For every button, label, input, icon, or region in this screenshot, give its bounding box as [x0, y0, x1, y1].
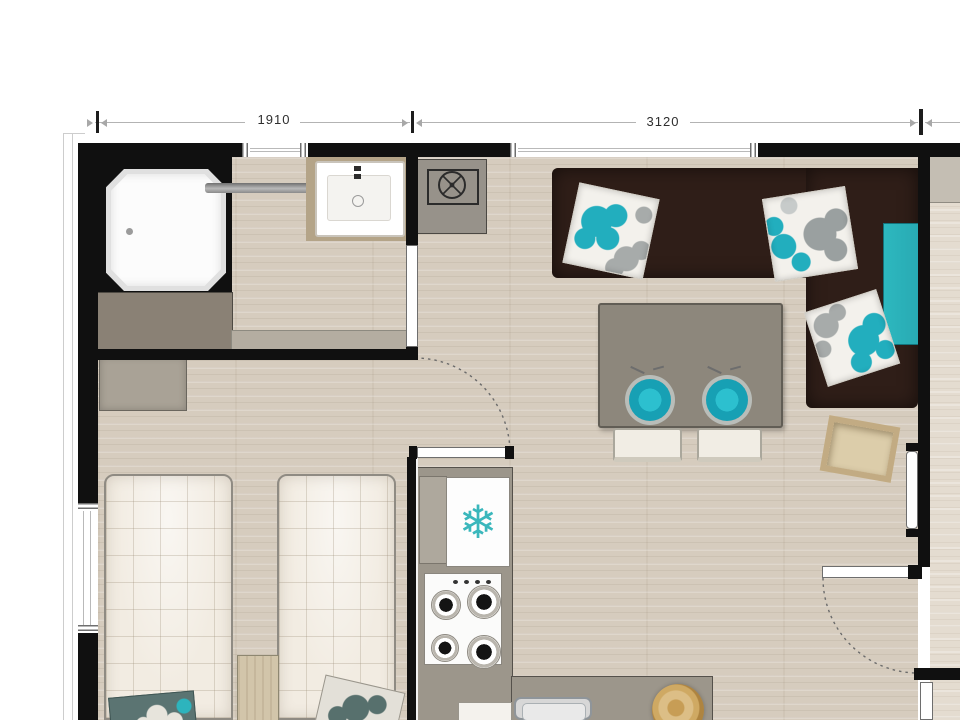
- dimension-line-segment: [300, 122, 410, 123]
- dimension-label-1910: 1910: [246, 112, 302, 127]
- right-wall-window: [906, 451, 918, 529]
- sofa-pillow: [562, 182, 659, 279]
- plan-outline-vertical-2: [72, 133, 73, 720]
- bathroom-window: [242, 143, 308, 157]
- single-bed: [104, 474, 233, 720]
- burner-icon: [431, 590, 461, 620]
- burner-icon: [467, 635, 501, 669]
- bathroom-counter: [98, 293, 232, 350]
- wall-bedroom-horizontal: [98, 349, 418, 360]
- dimension-line-segment: [95, 122, 245, 123]
- washbasin: [315, 161, 405, 237]
- right-window-cap: [906, 443, 918, 451]
- faucet-icon: [354, 174, 361, 179]
- burner-icon: [431, 634, 459, 662]
- adjacent-room-floor: [930, 157, 960, 720]
- shower-drain-icon: [126, 228, 133, 235]
- dimension-arrow-icon: [402, 119, 408, 127]
- right-door-hinge: [908, 565, 922, 579]
- shower-screen-bar: [205, 183, 313, 193]
- wall-bathroom-divider: [406, 157, 418, 245]
- hall-door-leaf: [417, 447, 507, 458]
- burner-icon: [467, 585, 501, 619]
- dimension-tick: [411, 111, 414, 133]
- living-room-window: [510, 143, 758, 157]
- wall-bottom-right-stub: [914, 668, 960, 680]
- place-setting: [625, 375, 675, 425]
- basin-drain-icon: [352, 195, 364, 207]
- faucet-icon: [354, 166, 361, 171]
- hall-door-hinge: [409, 446, 417, 459]
- water-heater: [415, 159, 487, 234]
- gas-hob: [424, 573, 502, 665]
- dining-chair: [613, 428, 682, 462]
- fridge-side-panel: [420, 477, 446, 563]
- plan-outline-vertical-1: [63, 133, 64, 720]
- dimension-tick: [96, 111, 99, 133]
- sofa-pillow: [762, 186, 858, 282]
- kitchen-sink: [514, 697, 592, 720]
- sink-basin: [522, 703, 586, 720]
- adjacent-room-counter: [930, 157, 960, 202]
- right-door-leaf: [822, 566, 920, 578]
- snowflake-icon: ❄: [459, 496, 498, 548]
- water-heater-symbol-icon: [435, 168, 469, 202]
- dimension-arrow-icon: [910, 119, 916, 127]
- nightstand: [238, 656, 278, 720]
- wall-right: [918, 143, 930, 567]
- fridge: ❄: [446, 477, 510, 567]
- wall-kitchen-partition: [407, 457, 418, 720]
- bottom-right-door-leaf: [920, 682, 933, 720]
- dimension-arrow-icon: [101, 119, 107, 127]
- sofa-teal-throw: [884, 224, 920, 344]
- hob-knob-icon: [464, 580, 469, 584]
- teal-plate: [629, 379, 671, 421]
- dining-chair: [697, 428, 762, 462]
- teal-plate: [706, 379, 748, 421]
- dimension-arrow-icon: [87, 119, 93, 127]
- bedroom-window: [78, 503, 98, 633]
- place-setting: [702, 375, 752, 425]
- dimension-tick: [919, 109, 923, 135]
- bathroom-step: [232, 331, 408, 350]
- dimension-label-3120: 3120: [634, 114, 692, 129]
- floor-plan: 1910 3120: [0, 0, 960, 720]
- hob-knob-icon: [453, 580, 458, 584]
- hob-knob-icon: [486, 580, 491, 584]
- plan-outline-horizontal: [63, 133, 85, 134]
- dimension-arrow-icon: [416, 119, 422, 127]
- dining-table: [598, 303, 783, 428]
- dimension-line-segment: [690, 122, 918, 123]
- dimension-arrow-icon: [926, 119, 932, 127]
- bathroom-door-leaf: [406, 245, 418, 347]
- wall-left: [78, 143, 98, 720]
- dimension-line-segment: [420, 122, 636, 123]
- hall-door-cap: [505, 446, 514, 459]
- sink-cabinet: [458, 702, 512, 720]
- hob-knob-icon: [475, 580, 480, 584]
- wardrobe: [100, 357, 186, 410]
- right-window-cap: [906, 529, 918, 537]
